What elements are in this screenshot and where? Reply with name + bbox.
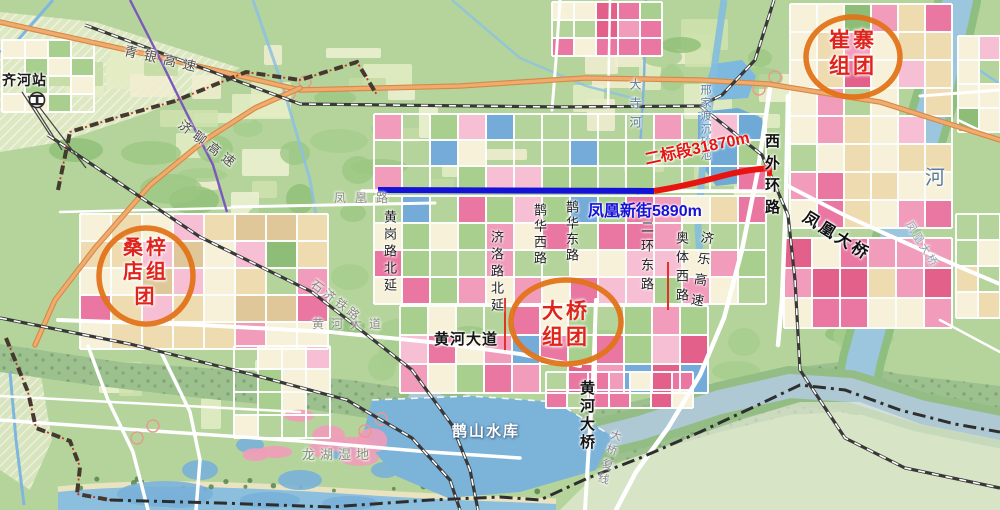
map-label-jiluo-road-north-ext: 济洛路北延 xyxy=(490,230,503,315)
map-label-west-outer-ring-road: 西外环路 xyxy=(764,133,779,221)
cluster-label-cuizhai: 崔寨 组团 xyxy=(806,28,900,79)
map-label-huanghe-bridge: 黄河大桥 xyxy=(579,380,594,452)
map-label-queshan-reservoir: 鹊山水库 xyxy=(452,424,520,439)
cluster-line: 组团 xyxy=(806,54,900,80)
map-label-fenghuang-road: 凤凰路 xyxy=(334,192,397,204)
map-label-quehua-west-road: 鹊华西路 xyxy=(533,203,546,267)
cluster-line: 团 xyxy=(100,285,192,309)
map-label-qihe-station: 齐河站 xyxy=(2,73,47,87)
cluster-label-daqiao: 大桥 组团 xyxy=(511,299,621,350)
map-label-dasi-river: 大寺河 xyxy=(629,78,641,135)
street-measure-line xyxy=(378,190,654,191)
map-label-erhuan-east-road: 二环东路 xyxy=(640,220,653,296)
map-label-longhu-wetland: 龙湖湿地 xyxy=(302,448,374,461)
planning-map: 崔寨 组团 桑梓 店组 团 大桥 组团 二标段31870m 凤凰新街5890m … xyxy=(0,0,1000,510)
map-label-huanghe-avenue: 黄河大道 xyxy=(434,332,498,347)
street-length-label: 凤凰新街5890m xyxy=(588,197,702,221)
map-label-quehua-east-road: 鹊华东路 xyxy=(565,200,578,264)
map-label-aoti-west-road: 奥体西路 xyxy=(675,231,688,307)
cluster-label-sangzidian: 桑梓 店组 团 xyxy=(100,236,192,309)
cluster-line: 大桥 xyxy=(511,299,621,325)
cluster-line: 店组 xyxy=(100,260,192,284)
cluster-line: 桑梓 xyxy=(100,236,192,260)
cluster-line: 组团 xyxy=(511,325,621,351)
map-label-huanggang-road-north-ext: 黄岗路北延 xyxy=(383,210,396,295)
cluster-line: 崔寨 xyxy=(806,28,900,54)
map-label-river: 河 xyxy=(925,168,945,188)
